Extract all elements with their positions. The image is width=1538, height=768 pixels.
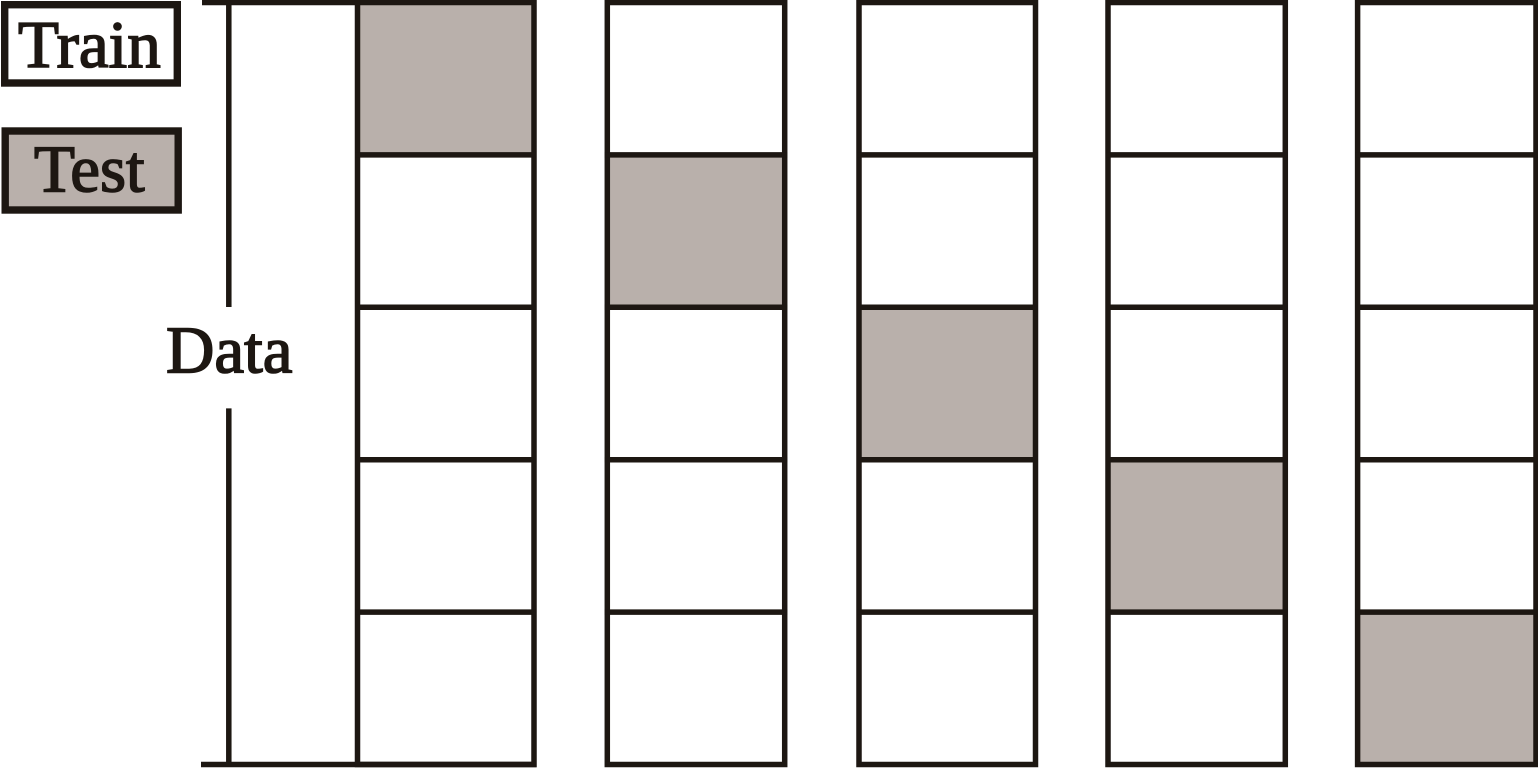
svg-text:Train: Train [18,8,161,82]
svg-text:Test: Test [34,132,145,206]
svg-text:Data: Data [166,314,292,388]
